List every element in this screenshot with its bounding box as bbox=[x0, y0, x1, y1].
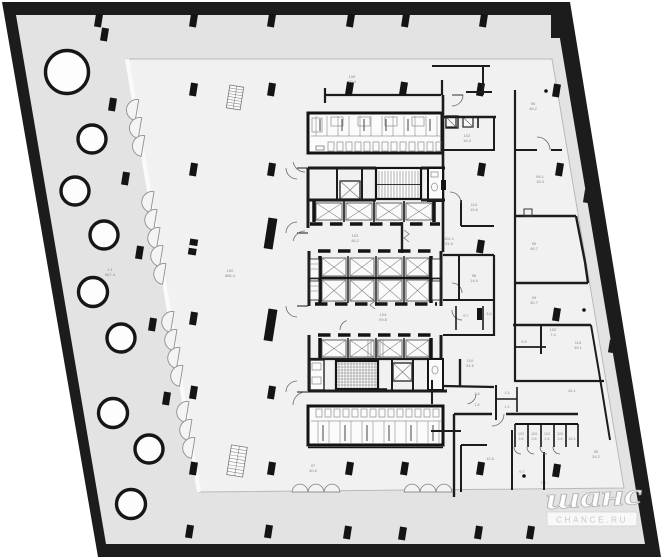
svg-text:30.7: 30.7 bbox=[530, 300, 539, 305]
svg-text:103: 103 bbox=[557, 432, 563, 436]
svg-text:667.4: 667.4 bbox=[105, 272, 116, 277]
svg-text:16.3: 16.3 bbox=[463, 138, 472, 143]
svg-text:3.4: 3.4 bbox=[486, 311, 492, 316]
svg-text:12.6: 12.6 bbox=[486, 456, 495, 461]
svg-text:шанс: шанс bbox=[545, 478, 644, 516]
svg-text:2.6: 2.6 bbox=[532, 437, 537, 441]
svg-text:10.6: 10.6 bbox=[470, 207, 479, 212]
svg-text:7.4: 7.4 bbox=[550, 332, 556, 337]
svg-text:2.8: 2.8 bbox=[475, 392, 480, 396]
svg-text:44.1: 44.1 bbox=[568, 388, 577, 393]
svg-text:9.7: 9.7 bbox=[463, 313, 469, 318]
svg-text:2.6: 2.6 bbox=[558, 437, 563, 441]
svg-text:2.6: 2.6 bbox=[545, 437, 550, 441]
svg-text:9.7: 9.7 bbox=[519, 469, 525, 474]
svg-text:30.6: 30.6 bbox=[309, 468, 318, 473]
svg-text:2.6: 2.6 bbox=[519, 437, 524, 441]
svg-text:46.2: 46.2 bbox=[529, 106, 538, 111]
svg-text:103: 103 bbox=[531, 432, 537, 436]
svg-text:51.6: 51.6 bbox=[466, 363, 475, 368]
svg-text:99.8: 99.8 bbox=[379, 317, 388, 322]
svg-text:103: 103 bbox=[544, 432, 550, 436]
svg-text:1.5: 1.5 bbox=[505, 391, 510, 395]
svg-text:9.3: 9.3 bbox=[521, 339, 527, 344]
svg-text:16.3: 16.3 bbox=[536, 179, 545, 184]
svg-text:46.7: 46.7 bbox=[530, 246, 539, 251]
svg-text:1.2: 1.2 bbox=[505, 405, 510, 409]
svg-text:1.8: 1.8 bbox=[475, 403, 480, 407]
svg-text:34.2: 34.2 bbox=[592, 454, 601, 459]
svg-text:46.1: 46.1 bbox=[574, 345, 583, 350]
svg-text:10.4: 10.4 bbox=[348, 79, 357, 84]
svg-text:103: 103 bbox=[518, 432, 524, 436]
svg-text:16.1: 16.1 bbox=[568, 436, 577, 441]
svg-text:91.6: 91.6 bbox=[445, 241, 454, 246]
svg-text:14.9: 14.9 bbox=[470, 278, 479, 283]
svg-text:46.2: 46.2 bbox=[351, 238, 360, 243]
svg-text:885.4: 885.4 bbox=[225, 273, 236, 278]
svg-text:CHANCE.RU: CHANCE.RU bbox=[556, 516, 628, 525]
